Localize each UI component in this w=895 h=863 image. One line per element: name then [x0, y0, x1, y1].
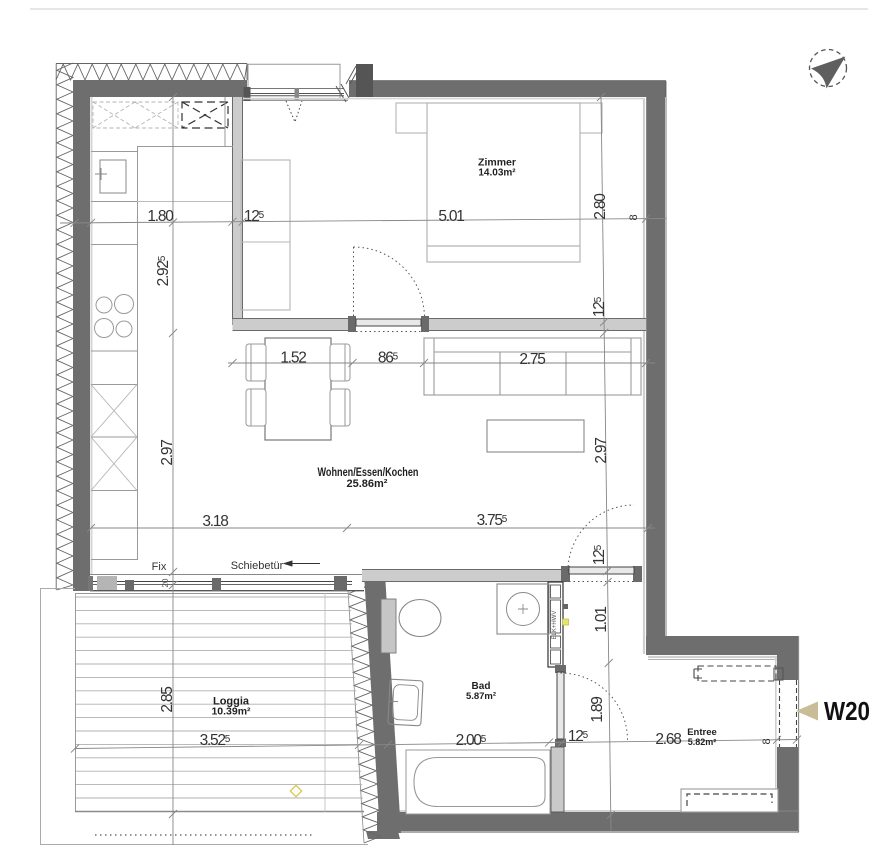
svg-text:1.52: 1.52: [280, 350, 306, 367]
svg-text:1.80: 1.80: [147, 208, 174, 225]
svg-text:5.01: 5.01: [438, 208, 464, 225]
svg-text:1.01: 1.01: [593, 607, 610, 633]
svg-text:2.80: 2.80: [592, 193, 609, 220]
svg-text:5.87m²: 5.87m²: [466, 691, 496, 702]
svg-text:5.82m²: 5.82m²: [688, 737, 717, 747]
svg-text:2.85: 2.85: [159, 687, 176, 713]
svg-text:3.18: 3.18: [202, 513, 228, 530]
svg-text:2.97: 2.97: [159, 440, 176, 466]
svg-text:ELK+HWV: ELK+HWV: [552, 611, 558, 640]
svg-text:10.39m²: 10.39m²: [211, 706, 251, 718]
svg-text:Fix: Fix: [152, 561, 167, 573]
svg-text:1.89: 1.89: [589, 697, 606, 723]
svg-text:25.86m²: 25.86m²: [347, 478, 388, 490]
svg-text:2.68: 2.68: [655, 731, 681, 748]
svg-text:2.97: 2.97: [593, 438, 610, 464]
svg-text:2.75: 2.75: [519, 351, 545, 368]
svg-text:W20: W20: [824, 696, 870, 726]
svg-text:20: 20: [161, 578, 170, 587]
svg-text:14.03m²: 14.03m²: [478, 168, 516, 179]
svg-text:Schiebetür: Schiebetür: [231, 560, 284, 572]
